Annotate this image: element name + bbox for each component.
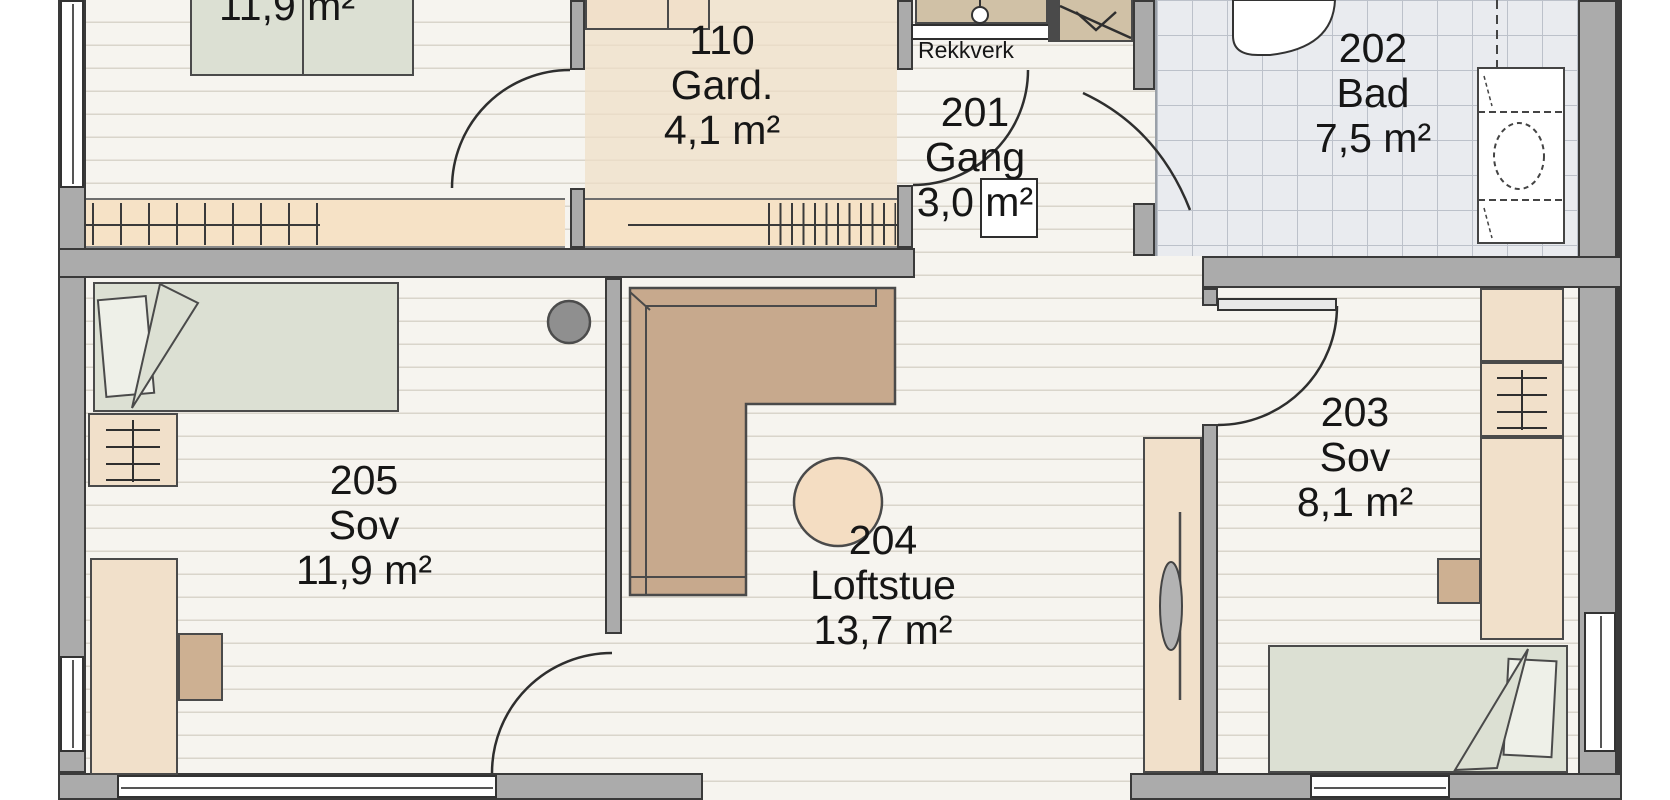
door-arc-bad (1083, 93, 1190, 210)
drawer-symbol-203 (1497, 370, 1547, 430)
room-number: 204 (810, 518, 956, 563)
room-label-203-sov: 203 Sov 8,1 m² (1297, 390, 1413, 525)
room-area: 7,5 m² (1315, 116, 1431, 161)
room-area: 4,1 m² (664, 108, 780, 153)
chimney (548, 301, 590, 343)
room-name: Gard. (664, 63, 780, 108)
room-number: 203 (1297, 390, 1413, 435)
room-label-204-loftstue: 204 Loftstue 13,7 m² (810, 518, 956, 653)
door-arc-206 (452, 70, 570, 188)
room-name: Loftstue (810, 563, 956, 608)
room-number: 202 (1315, 26, 1431, 71)
room-area: 8,1 m² (1297, 480, 1413, 525)
bathroom-vanity (1478, 68, 1564, 243)
drawer-symbol-205 (106, 420, 160, 482)
room-label-110-gard: 110 Gard. 4,1 m² (664, 18, 780, 153)
room-label-201-gang: 201 Gang 3,0 m² (917, 90, 1033, 225)
room-label-205-sov: 205 Sov 11,9 m² (296, 458, 432, 593)
floor-plan: 11,9 m² 110 Gard. 4,1 m² 201 Gang 3,0 m²… (0, 0, 1670, 800)
room-name: Sov (1297, 435, 1413, 480)
room-area: 13,7 m² (810, 608, 956, 653)
room-number: 205 (296, 458, 432, 503)
room-number: 110 (664, 18, 780, 63)
stair-run-line (1060, 6, 1131, 38)
room-name: Sov (296, 503, 432, 548)
railing-label: Rekkverk (918, 38, 1014, 63)
stair-newel (972, 7, 988, 23)
room-label-202-bad: 202 Bad 7,5 m² (1315, 26, 1431, 161)
room-area: 3,0 m² (917, 180, 1033, 225)
room-area: 11,9 m² (219, 0, 355, 29)
door-leaf-203 (1218, 299, 1336, 310)
room-number: 201 (917, 90, 1033, 135)
door-arc-205 (492, 653, 612, 773)
room-name: Bad (1315, 71, 1431, 116)
room-name: Gang (917, 135, 1033, 180)
sliding-door-lens (1160, 562, 1182, 650)
room-label-top-left: 11,9 m² (219, 0, 355, 29)
room-area: 11,9 m² (296, 548, 432, 593)
